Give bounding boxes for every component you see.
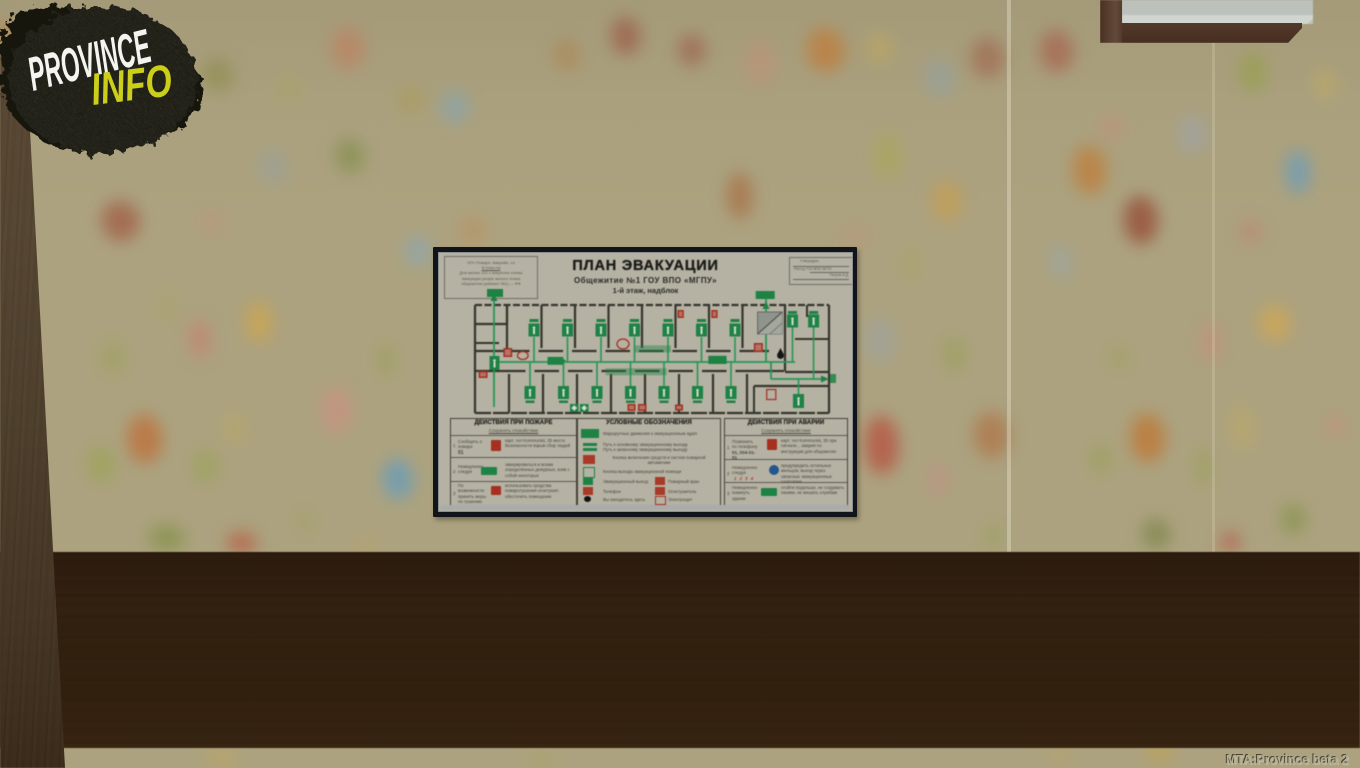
svg-text:INFO: INFO	[88, 54, 175, 114]
